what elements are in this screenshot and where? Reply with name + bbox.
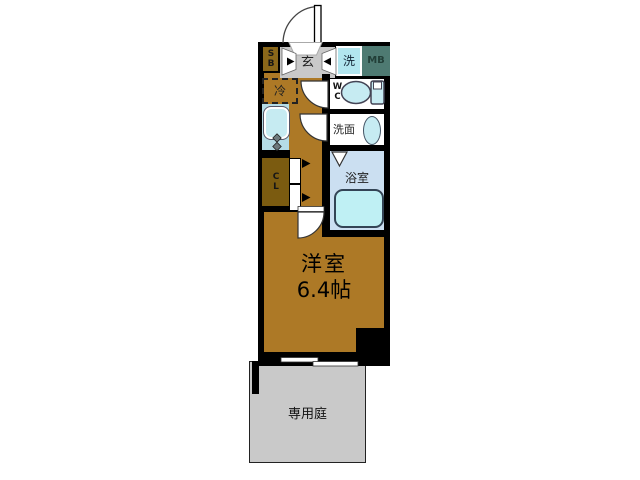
entrance-door-arc	[283, 7, 318, 44]
shoe-box-label: SB	[266, 49, 275, 69]
closet-label: CL	[271, 172, 280, 192]
washroom: 洗面	[330, 114, 384, 145]
closet-door-panel	[289, 158, 301, 184]
toilet-room: WC	[330, 79, 384, 109]
bathtub-icon	[334, 189, 384, 228]
bottom-right-wall-block	[356, 328, 390, 366]
western-room-size: 6.4帖	[264, 277, 384, 303]
private-garden-area: 専用庭	[249, 361, 366, 463]
refrigerator-space: 冷	[262, 78, 298, 104]
western-room-label: 洋室 6.4帖	[264, 251, 384, 303]
washer-space: 洗	[336, 46, 362, 76]
entrance-label: 玄	[301, 55, 314, 70]
wall-bath-bottom	[322, 230, 390, 237]
meter-box: MB	[362, 46, 390, 76]
toilet-room-label: WC	[333, 82, 342, 102]
bathroom-label: 浴室	[330, 151, 384, 186]
closet-door-panel	[289, 184, 301, 211]
meter-box-label: MB	[367, 55, 385, 66]
private-garden-label: 専用庭	[288, 403, 327, 422]
refrigerator-label: 冷	[274, 84, 286, 98]
kitchen-sink-icon	[264, 107, 289, 139]
washbasin-icon	[363, 116, 381, 145]
floorplan: 専用庭 玄 SB 洗 MB WC 洗面 浴室 冷 CL 洋室	[0, 0, 640, 480]
wall-kitchen-closet	[258, 150, 290, 158]
wall-bath-left	[322, 74, 330, 237]
shoe-box: SB	[261, 45, 280, 73]
washroom-label: 洗面	[333, 114, 355, 145]
western-room-name: 洋室	[264, 251, 384, 277]
entrance-door-leaf	[315, 6, 322, 44]
kitchen-counter	[262, 104, 289, 150]
closet: CL	[262, 158, 289, 206]
bathroom: 浴室	[330, 151, 384, 230]
washer-label: 洗	[343, 54, 355, 68]
